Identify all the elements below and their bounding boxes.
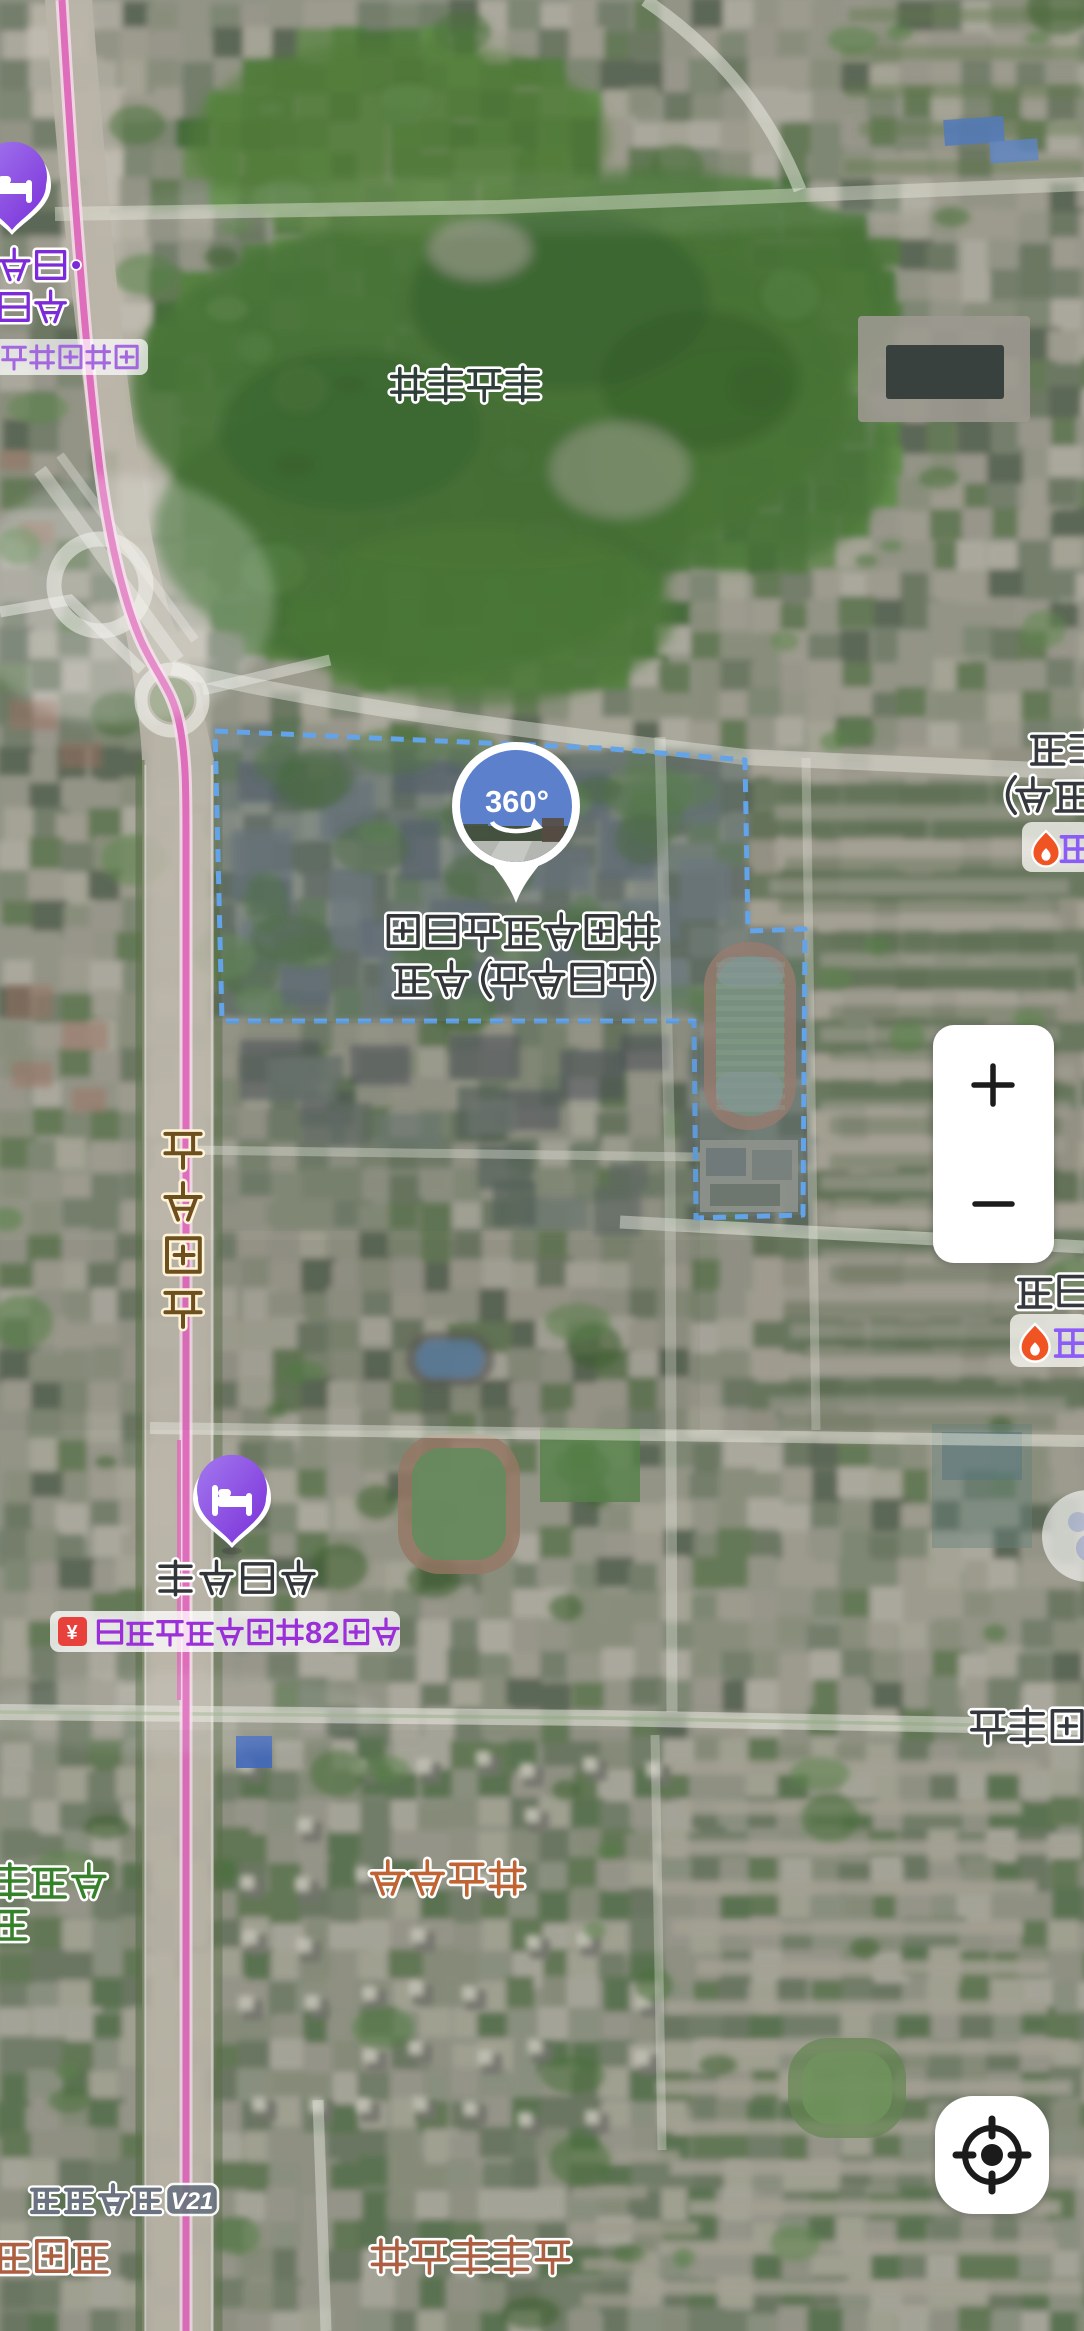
svg-text:V21: V21	[171, 2188, 214, 2215]
svg-text:¥: ¥	[66, 1622, 78, 1644]
svg-text:360°: 360°	[485, 784, 549, 819]
svg-text:82: 82	[305, 1615, 339, 1650]
